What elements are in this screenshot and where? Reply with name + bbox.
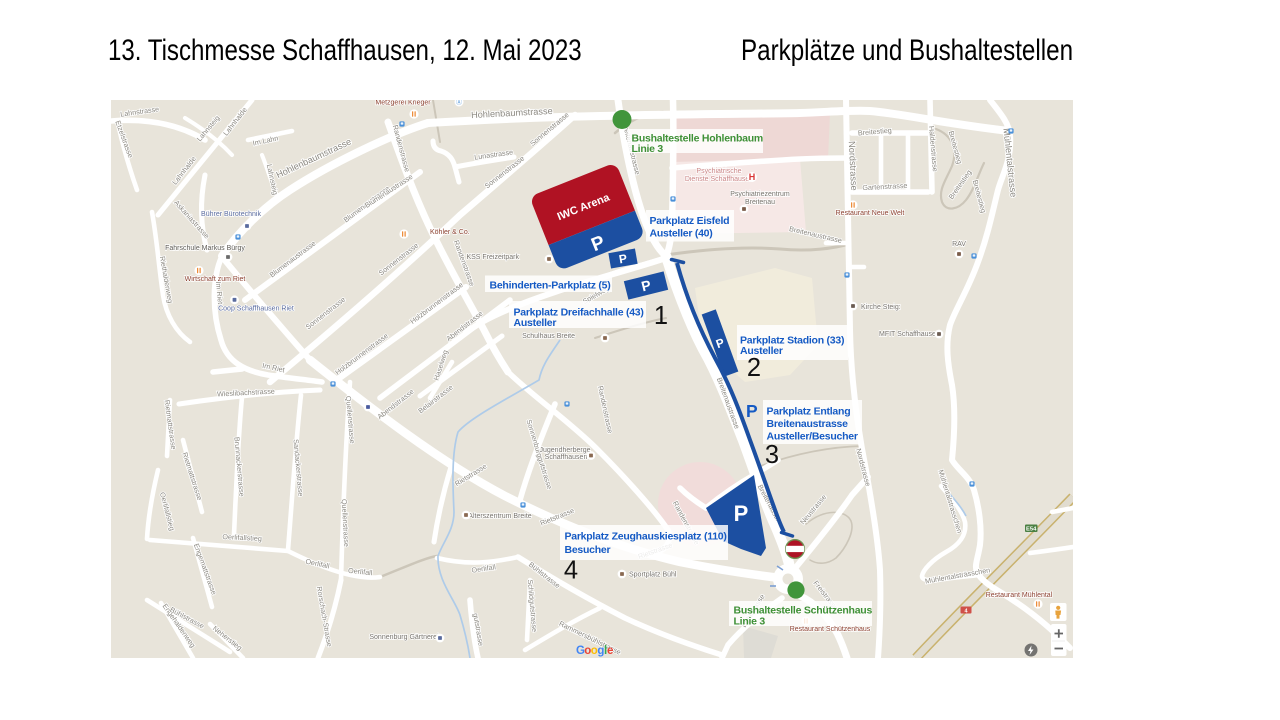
svg-text:Alterszentrum Breite: Alterszentrum Breite: [468, 513, 532, 520]
svg-text:Parkplatz Eisfeld: Parkplatz Eisfeld: [650, 215, 730, 227]
svg-text:KSS Freizeitpark: KSS Freizeitpark: [466, 254, 519, 261]
svg-text:Breitenaustrasse: Breitenaustrasse: [767, 418, 849, 430]
svg-text:Behinderten-Parkplatz (5): Behinderten-Parkplatz (5): [490, 279, 611, 291]
svg-text:Breitenau: Breitenau: [745, 199, 775, 206]
svg-text:Metzgerei Krieger: Metzgerei Krieger: [375, 100, 431, 107]
svg-text:Restaurant Neue Welt: Restaurant Neue Welt: [836, 210, 905, 217]
svg-text:Linie 3: Linie 3: [632, 143, 664, 155]
svg-text:Psychiatriezentrum: Psychiatriezentrum: [730, 191, 790, 198]
svg-text:E54: E54: [1026, 527, 1037, 533]
svg-text:Schulhaus Breite: Schulhaus Breite: [522, 333, 575, 340]
svg-text:4: 4: [564, 557, 578, 585]
svg-text:Dienste Schaffhausen: Dienste Schaffhausen: [685, 176, 753, 183]
svg-text:Wirtschaft zum Riet: Wirtschaft zum Riet: [185, 276, 246, 283]
svg-text:Besucher: Besucher: [565, 544, 611, 556]
svg-text:Sportplatz Bühl: Sportplatz Bühl: [629, 572, 677, 579]
svg-text:Austeller: Austeller: [514, 317, 557, 329]
svg-text:Linie 3: Linie 3: [734, 616, 766, 628]
svg-text:Kirche Steig:: Kirche Steig:: [861, 304, 901, 311]
svg-text:1: 1: [654, 302, 668, 330]
svg-text:Ⓐ: Ⓐ: [456, 100, 462, 107]
svg-text:Sonnenburg Gärtnerei: Sonnenburg Gärtnerei: [369, 634, 439, 641]
svg-text:Restaurant Mühlental: Restaurant Mühlental: [986, 592, 1053, 599]
svg-text:MFIT Schaffhausen: MFIT Schaffhausen: [879, 331, 940, 338]
svg-text:P: P: [746, 401, 758, 421]
svg-text:Restaurant Schützenhaus: Restaurant Schützenhaus: [790, 626, 871, 633]
svg-text:Köhler & Co.: Köhler & Co.: [430, 229, 470, 236]
svg-text:Schaffhausen: Schaffhausen: [545, 454, 588, 461]
svg-text:Parkplatz Zeughauskiesplatz (1: Parkplatz Zeughauskiesplatz (110): [565, 531, 727, 543]
svg-text:Parkplatz Entlang: Parkplatz Entlang: [767, 406, 851, 418]
svg-text:P: P: [734, 501, 749, 526]
svg-text:Psychiatrische: Psychiatrische: [696, 168, 741, 175]
svg-text:Jugendherberge: Jugendherberge: [540, 447, 591, 454]
svg-text:Bührer Bürotechnik: Bührer Bürotechnik: [201, 211, 261, 218]
svg-text:e: e: [607, 645, 613, 657]
svg-text:2: 2: [747, 354, 761, 382]
svg-text:Fahrschule Markus Bürgy: Fahrschule Markus Bürgy: [165, 245, 245, 252]
svg-text:RAV: RAV: [952, 241, 966, 248]
svg-text:Austeller (40): Austeller (40): [650, 228, 713, 240]
svg-text:Austeller/Besucher: Austeller/Besucher: [767, 431, 858, 443]
svg-text:3: 3: [765, 441, 779, 469]
svg-text:H: H: [749, 172, 756, 182]
svg-text:Coop Schaffhausen Riet: Coop Schaffhausen Riet: [218, 306, 294, 313]
